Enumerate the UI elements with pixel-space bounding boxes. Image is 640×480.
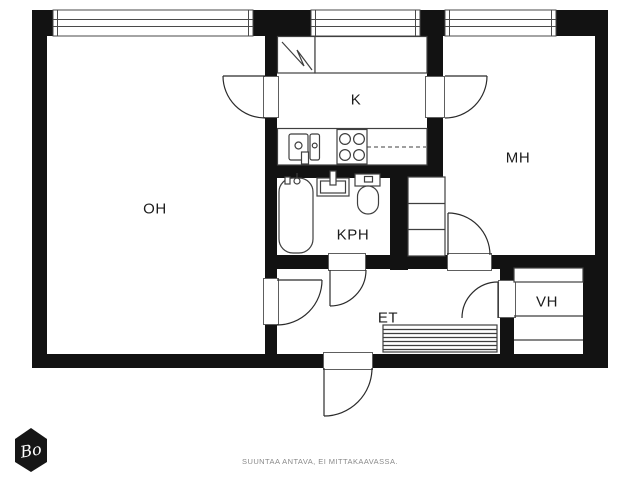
wall-mh-vh (500, 255, 595, 268)
wall-k-mh-1 (427, 36, 443, 76)
room-label-mh: MH (506, 150, 531, 167)
room-label-et: ET (378, 310, 398, 327)
wall-et-vh-2 (500, 318, 514, 368)
door-k-mh (445, 76, 487, 118)
wall-bottom-right (373, 354, 608, 368)
stove (337, 130, 367, 165)
bathtub (279, 178, 313, 253)
floorplan-page: OH K MH KPH ET VH Bo SUUNTAA ANTAVA, EI … (0, 0, 640, 480)
door-mh-et (448, 213, 490, 255)
floorplan-drawing (0, 0, 640, 480)
window-mh (445, 10, 556, 36)
wall-oh-k-1 (265, 36, 277, 76)
window-k (311, 10, 420, 36)
kitchen-counter-top (315, 37, 427, 74)
closet-mh (408, 177, 445, 256)
opening-oh-k (264, 77, 279, 118)
window-oh (53, 10, 253, 36)
bathtub-faucet (285, 177, 290, 184)
coat-rack-et (383, 325, 497, 352)
sink-faucet (302, 152, 309, 164)
kitchen-sink (289, 134, 320, 164)
wall-top-mid-1 (253, 10, 311, 36)
brand-logo: Bo (0, 0, 70, 480)
opening-entrance (324, 353, 373, 370)
wall-right-lower (583, 262, 608, 368)
washbasin-faucet (330, 171, 336, 185)
opening-kph-et (329, 254, 366, 271)
toilet (355, 174, 380, 214)
wall-top-corner-right (556, 10, 608, 36)
wall-oh-et (265, 325, 277, 354)
fridge (278, 37, 316, 74)
door-et-vh (462, 282, 498, 318)
opening-k-mh (426, 77, 445, 118)
room-label-k: K (351, 92, 362, 109)
wall-kph-mh (390, 165, 408, 270)
wall-top-mid-2 (420, 10, 445, 36)
door-kph-et (330, 270, 366, 306)
wall-et-top-2 (366, 255, 447, 269)
room-label-kph: KPH (337, 227, 370, 244)
wall-bottom-left (32, 354, 323, 368)
opening-oh-et (264, 279, 279, 325)
disclaimer-text: SUUNTAA ANTAVA, EI MITTAKAAVASSA. (0, 457, 640, 466)
wall-oh-k-2 (265, 118, 277, 278)
room-label-oh: OH (143, 201, 167, 218)
door-oh-k (223, 76, 265, 118)
room-label-vh: VH (536, 294, 558, 311)
door-oh-et (277, 280, 322, 325)
wall-et-top-1 (277, 255, 328, 269)
opening-et-vh (499, 281, 516, 318)
door-entrance (324, 368, 372, 416)
wall-et-vh-1 (500, 255, 514, 280)
wall-right-upper (595, 10, 608, 262)
opening-mh-et (448, 254, 492, 271)
